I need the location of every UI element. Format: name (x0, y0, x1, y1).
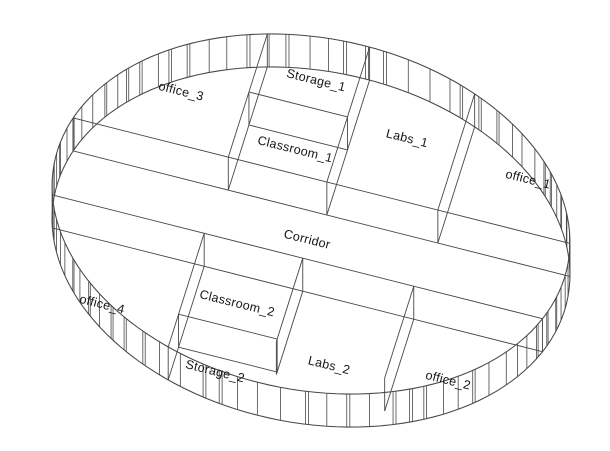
room-label-office-2: office_2 (424, 368, 472, 393)
room-label-classroom-2: Classroom_2 (198, 287, 276, 319)
room-label-classroom-1: Classroom_1 (256, 133, 334, 165)
floorplan-drawing: office_3 Storage_1 Classroom_1 Labs_1 of… (0, 0, 610, 451)
outer-wall-top-rim (52, 34, 570, 394)
room-label-storage-1: Storage_1 (285, 66, 347, 94)
room-label-labs-1: Labs_1 (385, 126, 430, 150)
room-label-labs-2: Labs_2 (307, 353, 352, 377)
outer-wall-panel-ticks (52, 34, 570, 427)
room-label-office-3: office_3 (157, 79, 205, 104)
floorplan-canvas: office_3 Storage_1 Classroom_1 Labs_1 of… (0, 0, 610, 451)
room-label-corridor: Corridor (282, 227, 332, 252)
room-label-office-4: office_4 (78, 292, 126, 317)
